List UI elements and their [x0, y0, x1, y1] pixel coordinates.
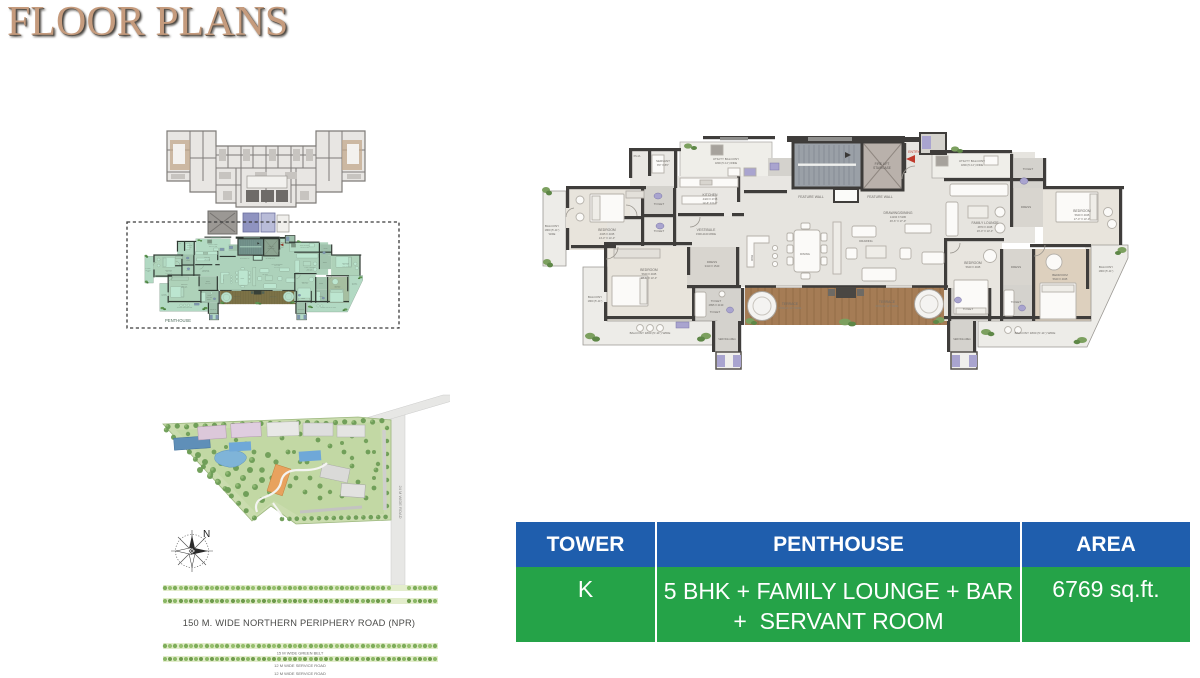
- svg-text:PENTHOUSE: PENTHOUSE: [165, 318, 191, 323]
- svg-text:15 M WIDE GREEN BELT: 15 M WIDE GREEN BELT: [277, 651, 324, 656]
- svg-text:150 M. WIDE NORTHERN PERIPHERY: 150 M. WIDE NORTHERN PERIPHERY ROAD (NPR…: [183, 618, 415, 628]
- svg-text:12 M WIDE SERVICE ROAD: 12 M WIDE SERVICE ROAD: [274, 663, 326, 668]
- svg-text:12 M WIDE SERVICE ROAD: 12 M WIDE SERVICE ROAD: [274, 671, 326, 676]
- svg-text:N: N: [203, 529, 210, 540]
- svg-text:24 M WIDE ROAD: 24 M WIDE ROAD: [398, 485, 403, 518]
